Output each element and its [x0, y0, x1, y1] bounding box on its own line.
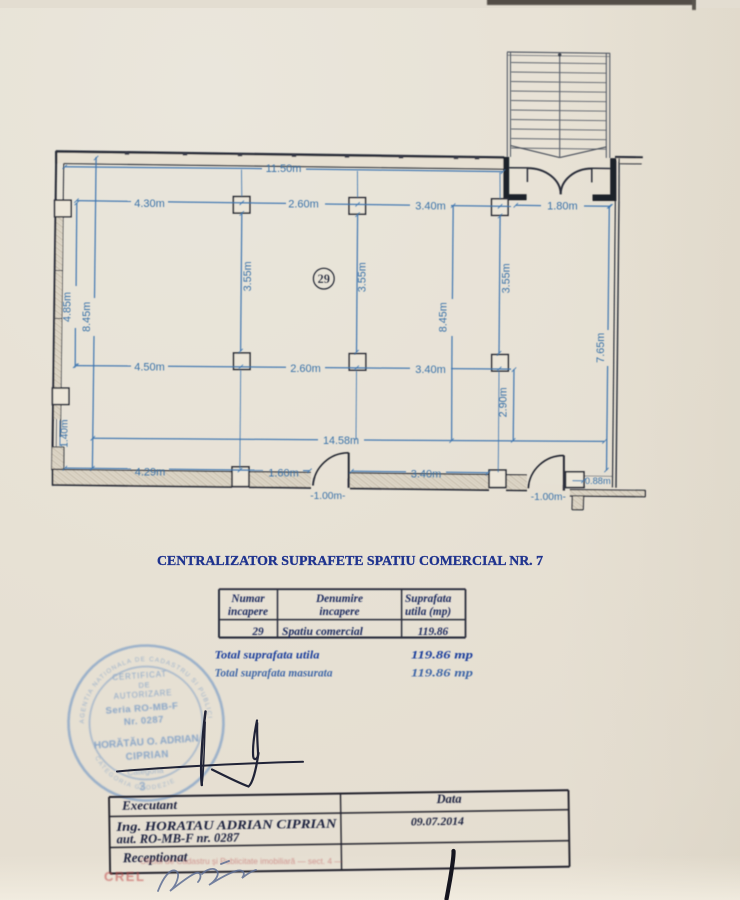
svg-text:Executant: Executant: [121, 797, 177, 813]
svg-text:Suprafata: Suprafata: [405, 593, 452, 605]
svg-text:8.45m: 8.45m: [81, 302, 93, 332]
svg-text:119.86 mp: 119.86 mp: [411, 666, 473, 680]
svg-text:4.29m: 4.29m: [135, 467, 166, 479]
svg-text:2.90m: 2.90m: [498, 387, 510, 417]
svg-text:3.40m: 3.40m: [411, 468, 442, 480]
svg-text:Total suprafata utila: Total suprafata utila: [215, 647, 320, 661]
svg-text:0.88m: 0.88m: [585, 476, 611, 486]
svg-text:Data: Data: [435, 792, 461, 806]
svg-text:Denumire: Denumire: [315, 593, 363, 605]
svg-text:utila (mp): utila (mp): [405, 606, 451, 618]
svg-text:4.50m: 4.50m: [134, 362, 165, 374]
svg-text:3.55m: 3.55m: [356, 262, 368, 292]
svg-text:7.65m: 7.65m: [595, 333, 607, 363]
svg-text:DE: DE: [138, 680, 150, 690]
svg-text:incapere: incapere: [228, 606, 268, 618]
svg-text:Oficiul de Cadastru şi Publici: Oficiul de Cadastru şi Publicitate imobi…: [140, 857, 343, 866]
svg-text:-1.00m-: -1.00m-: [531, 492, 566, 503]
svg-text:Spatiu comercial: Spatiu comercial: [282, 625, 364, 638]
svg-text:1.60m: 1.60m: [268, 467, 299, 479]
svg-text:CENTRALIZATOR SUPRAFETE SPATIU: CENTRALIZATOR SUPRAFETE SPATIU COMERCIAL…: [157, 553, 543, 568]
svg-text:3.40m: 3.40m: [415, 364, 446, 376]
svg-text:3.55m: 3.55m: [242, 261, 254, 291]
svg-text:3.40m: 3.40m: [415, 200, 446, 212]
svg-text:aut. RO-MB-F nr. 0287: aut. RO-MB-F nr. 0287: [117, 831, 240, 847]
svg-text:09.07.2014: 09.07.2014: [411, 814, 464, 829]
svg-text:2.60m: 2.60m: [290, 363, 321, 375]
svg-text:119.86: 119.86: [418, 626, 449, 638]
svg-text:Total suprafata masurata: Total suprafata masurata: [215, 666, 333, 680]
svg-text:-1.00m-: -1.00m-: [310, 491, 345, 502]
svg-text:2.60m: 2.60m: [288, 199, 319, 211]
svg-text:119.86 mp: 119.86 mp: [411, 647, 473, 661]
svg-text:1.40m: 1.40m: [59, 419, 70, 447]
svg-text:29: 29: [251, 626, 264, 638]
svg-text:Numar: Numar: [230, 593, 265, 605]
svg-text:11.50m: 11.50m: [266, 163, 302, 175]
svg-text:1.80m: 1.80m: [547, 200, 578, 212]
svg-text:14.58m: 14.58m: [323, 435, 359, 447]
svg-text:3: 3: [139, 779, 147, 793]
svg-text:incapere: incapere: [319, 606, 359, 618]
svg-text:29: 29: [318, 272, 331, 286]
svg-text:CREL: CREL: [104, 869, 145, 884]
svg-text:3.55m: 3.55m: [500, 263, 512, 293]
svg-text:8.45m: 8.45m: [437, 302, 449, 332]
svg-text:4.30m: 4.30m: [134, 198, 165, 210]
svg-text:4.85m: 4.85m: [61, 292, 73, 322]
